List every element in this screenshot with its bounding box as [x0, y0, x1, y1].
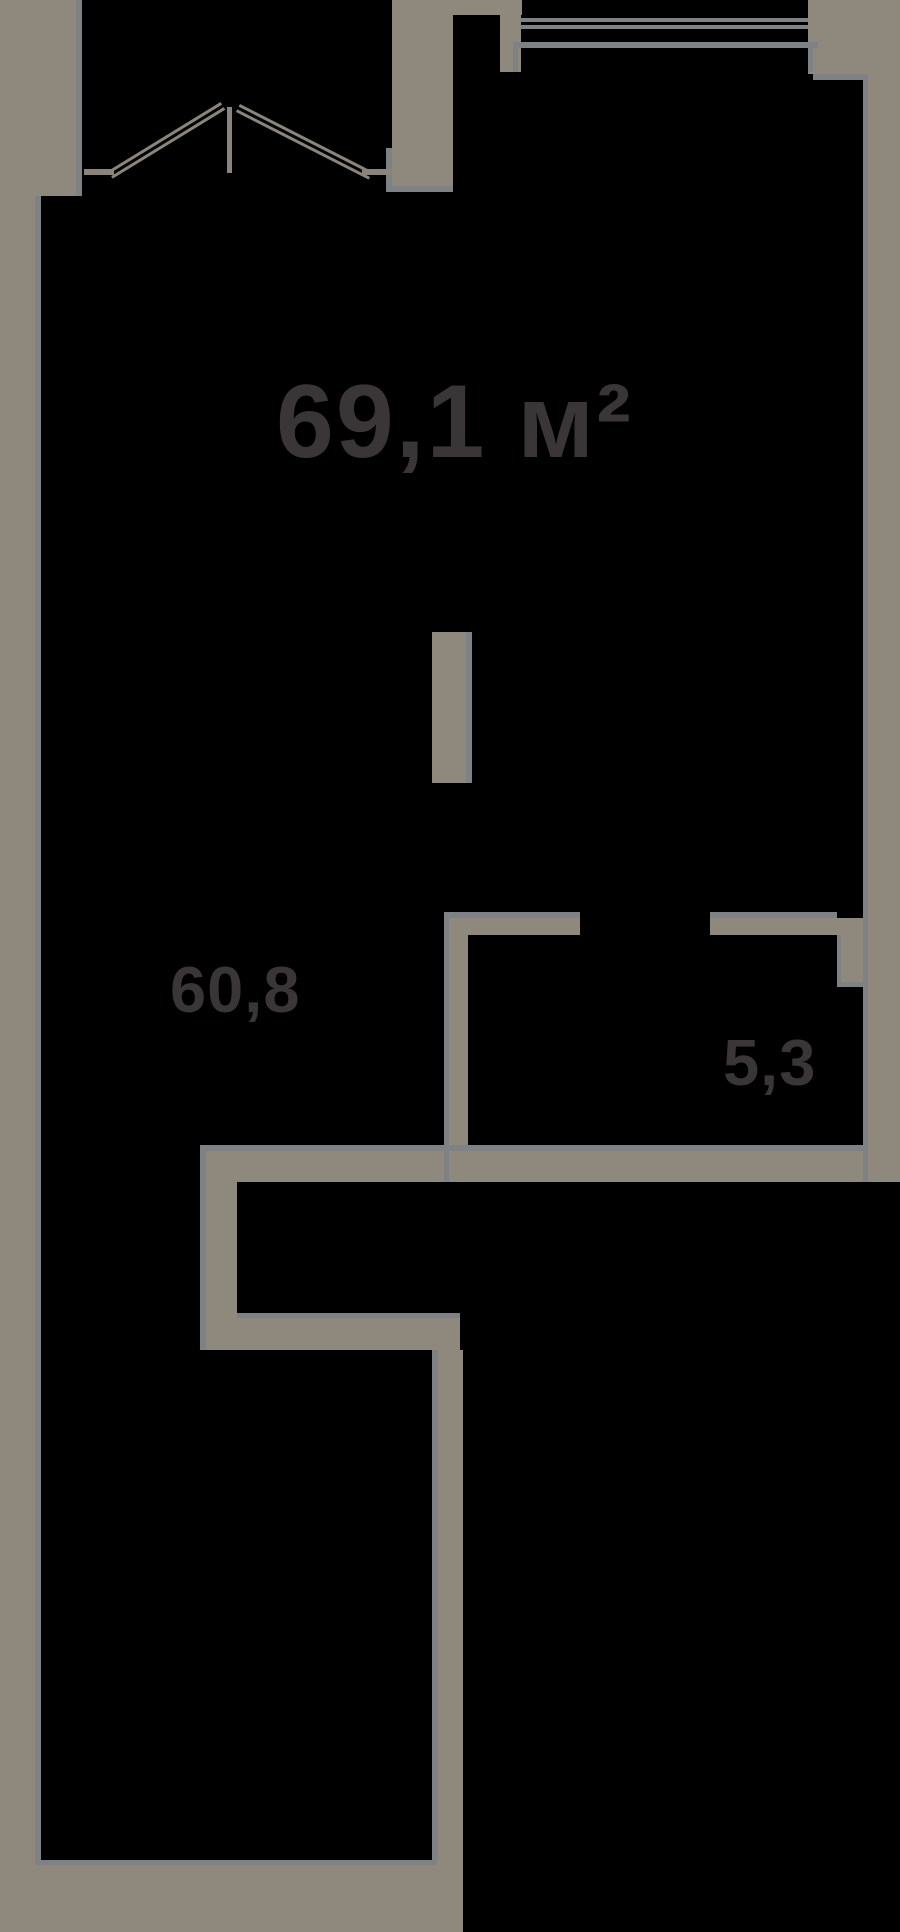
wall-lower-horizontal	[200, 1151, 900, 1182]
wall-room-pilaster	[837, 918, 865, 982]
wall-top-left-block	[0, 0, 78, 196]
balcony-door-diagonal-left	[108, 102, 226, 179]
wall-bottom	[0, 1865, 463, 1932]
wall-top-right-block	[808, 0, 900, 74]
floor-plan: 69,1 м² 60,8 5,3	[0, 0, 900, 1932]
wall-lower-vertical	[437, 1350, 463, 1865]
door-leaf-line	[239, 104, 373, 174]
edge-room-top-right	[710, 912, 837, 918]
edge-corridor-left	[200, 1151, 206, 1350]
window-glazing-line-2	[520, 25, 808, 29]
edge-room-top-left	[444, 912, 580, 918]
edge-center-stub	[466, 632, 472, 783]
wall-corridor-bottom	[237, 1318, 460, 1350]
balcony-door-diagonal-right	[235, 104, 372, 181]
edge-pilaster-bottom	[837, 982, 865, 987]
window-jamb-edge-left	[513, 48, 518, 72]
wall-room-top-right	[710, 918, 837, 935]
main-room-area-label: 60,8	[170, 957, 301, 1022]
wall-center-stub	[432, 632, 467, 783]
edge-top-right-bottom	[813, 74, 863, 80]
wall-right	[868, 72, 900, 1182]
window-glazing-line-1	[520, 18, 808, 22]
window-jamb-edge-right	[808, 48, 813, 72]
edge-left-wall	[35, 196, 41, 1860]
edge-balcony-wall-bottom	[386, 186, 453, 192]
edge-room-left-wall	[444, 918, 449, 1182]
edge-lower-horizontal	[200, 1145, 863, 1151]
edge-top-left-block	[76, 0, 82, 196]
balcony-door-center-post	[227, 107, 232, 173]
edge-corridor-bottom	[237, 1313, 460, 1318]
edge-lower-vertical	[432, 1350, 438, 1860]
door-leaf-line	[108, 102, 222, 174]
wall-balcony-right	[392, 0, 453, 187]
door-leaf-line	[236, 109, 370, 179]
door-leaf-line	[111, 107, 225, 179]
edge-pilaster-side	[837, 935, 841, 982]
small-room-area-label: 5,3	[723, 1030, 816, 1095]
edge-right-wall	[863, 74, 868, 1182]
window-sill-line	[513, 42, 818, 48]
wall-left	[0, 196, 35, 1865]
total-area-label: 69,1 м²	[276, 370, 633, 474]
edge-bottom-wall	[35, 1860, 437, 1865]
